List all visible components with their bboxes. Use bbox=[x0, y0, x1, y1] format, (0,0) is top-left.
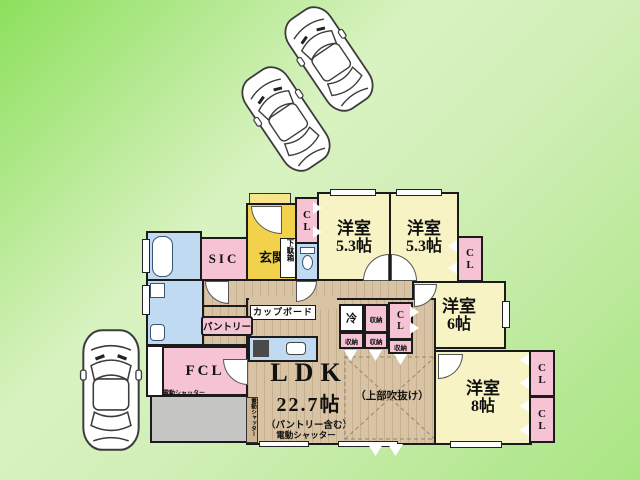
window-door-mark bbox=[388, 444, 403, 456]
storage-box: 収納 bbox=[364, 304, 388, 333]
window bbox=[259, 441, 309, 447]
shutter-label-bottom: 電動シャッター bbox=[270, 429, 342, 441]
void-area-marks bbox=[344, 356, 436, 440]
bedroom-size: 5.3帖 bbox=[336, 238, 372, 256]
sic-label: SIC bbox=[209, 251, 240, 267]
cupboard-label: カップボード bbox=[250, 305, 316, 320]
closet-cl: CL bbox=[388, 302, 413, 340]
storage-label: 収納 bbox=[394, 342, 407, 352]
window-door-mark bbox=[368, 444, 383, 456]
fcl-label: FCL bbox=[186, 363, 225, 380]
bedroom-size: 6帖 bbox=[447, 316, 471, 334]
storage-label: 収納 bbox=[370, 336, 383, 346]
bedroom-name: 洋室 bbox=[442, 297, 476, 316]
room-sic: SIC bbox=[200, 237, 248, 281]
storage-label: 収納 bbox=[345, 336, 358, 346]
fridge-label: 冷 bbox=[346, 310, 357, 326]
fridge-space: 冷 bbox=[339, 304, 364, 332]
pantry-label: パントリー bbox=[201, 316, 253, 336]
window bbox=[142, 239, 150, 273]
closet-cl: CL bbox=[457, 236, 483, 282]
window bbox=[142, 285, 150, 315]
bedroom-size: 8帖 bbox=[471, 398, 495, 416]
closet-cl: CL bbox=[529, 396, 555, 443]
bathtub-icon bbox=[152, 236, 173, 277]
bedroom-name: 洋室 bbox=[407, 219, 441, 238]
washer-icon bbox=[150, 283, 165, 298]
storage-box: 収納 bbox=[364, 332, 388, 349]
shutter-label-side: 電動シャッター bbox=[246, 397, 258, 443]
floorplan-page: { "colors": { "wall": "#1b1b1b", "room_c… bbox=[0, 0, 640, 480]
window bbox=[330, 189, 376, 196]
bedroom-name: 洋室 bbox=[337, 219, 371, 238]
bedroom-size: 5.3帖 bbox=[406, 238, 442, 256]
sink-icon bbox=[150, 324, 165, 341]
window bbox=[450, 441, 502, 448]
terrace bbox=[150, 395, 248, 443]
toilet-bowl-icon bbox=[302, 255, 313, 270]
window bbox=[396, 189, 442, 196]
storage-box: 収納 bbox=[339, 332, 364, 349]
pantry-text: パントリー bbox=[203, 319, 251, 333]
window bbox=[502, 301, 510, 328]
toilet-tank-icon bbox=[300, 247, 315, 254]
floor-plan: 玄関 下駄箱 SIC CL 洋室 5.3帖 洋室 5.3帖 CL 洋室 6帖 カ… bbox=[0, 0, 640, 480]
storage-box: 収納 bbox=[388, 339, 413, 354]
closet-cl: CL bbox=[529, 350, 555, 397]
stove-icon bbox=[253, 340, 269, 357]
kitchen-sink-icon bbox=[286, 342, 306, 355]
storage-label: 収納 bbox=[370, 314, 383, 324]
bedroom-name: 洋室 bbox=[466, 379, 500, 398]
